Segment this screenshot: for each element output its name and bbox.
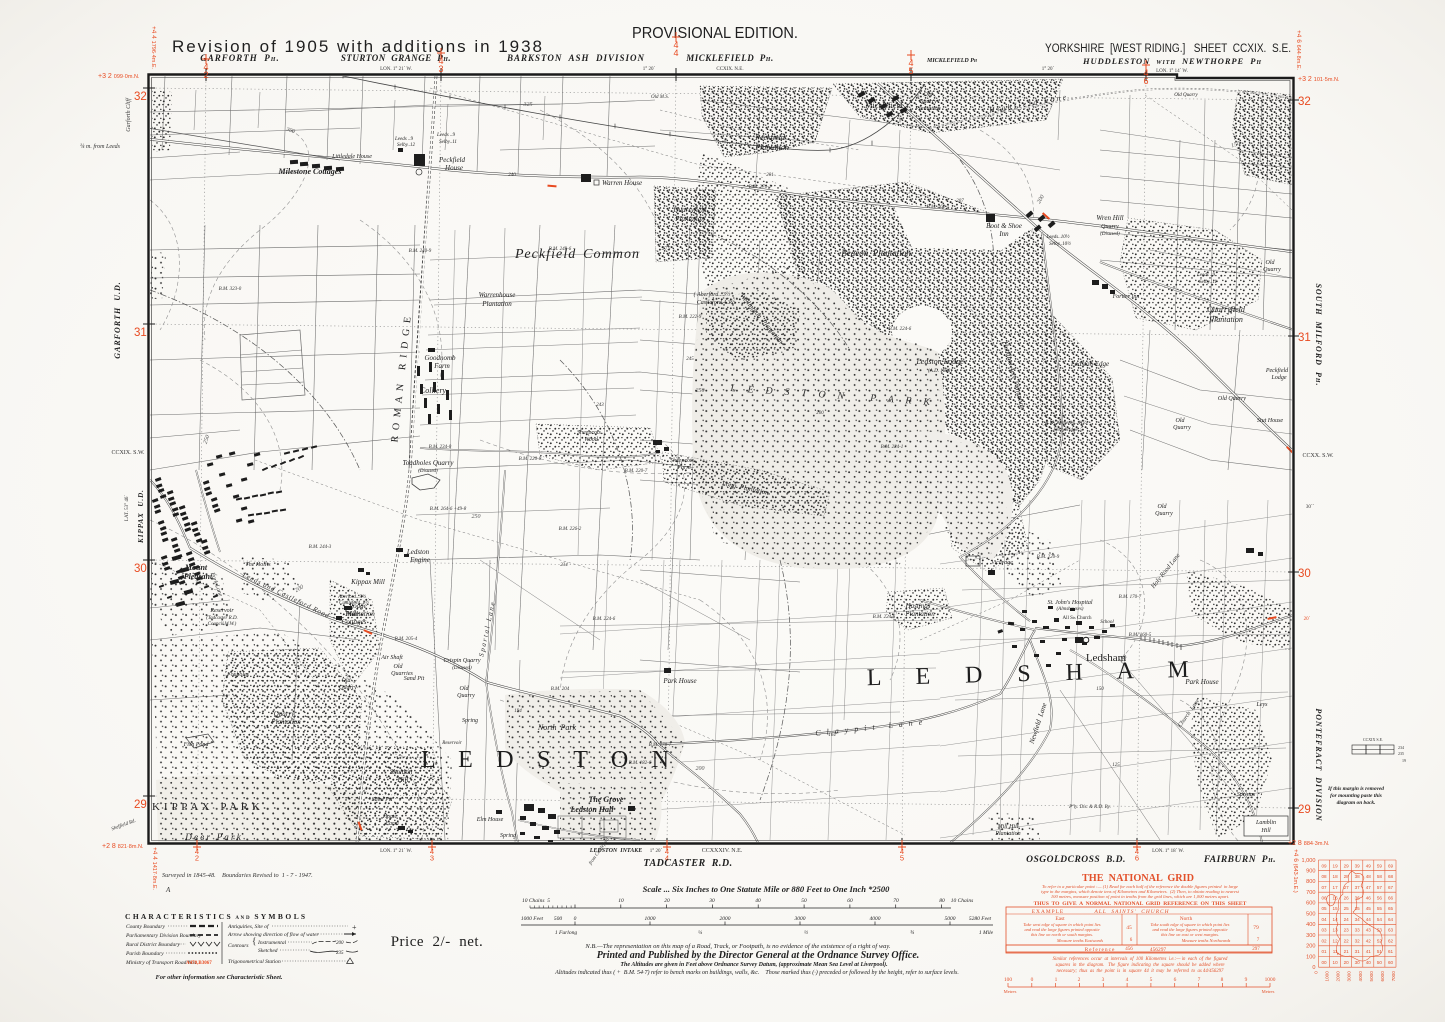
svg-text:EXAMPLE: EXAMPLE (1032, 909, 1064, 915)
svg-text:Scale ... Six Inches to One St: Scale ... Six Inches to One Statute Mile… (643, 884, 890, 894)
svg-text:1000: 1000 (1265, 977, 1276, 983)
svg-text:Sand Pit: Sand Pit (372, 797, 393, 803)
svg-text:Old: Old (342, 678, 352, 684)
svg-text:+4 4 1417·8m.E.: +4 4 1417·8m.E. (151, 847, 158, 891)
svg-text:LON. 1° 14´ W.: LON. 1° 14´ W. (1156, 69, 1188, 74)
svg-text:46: 46 (1366, 896, 1372, 901)
svg-text:Pºly. Dis. & R.D. By.: Pºly. Dis. & R.D. By. (1068, 804, 1111, 810)
svg-text:Parish Boundary: Parish Boundary (125, 951, 164, 957)
svg-text:57: 57 (1377, 885, 1383, 890)
svg-text:Metres: Metres (1004, 989, 1017, 994)
svg-text:Inn: Inn (998, 230, 1009, 238)
svg-text:STURTON GRANGE PH.: STURTON GRANGE PH. (341, 53, 451, 63)
svg-text:Old: Old (924, 92, 934, 98)
svg-text:Parliamentary Division Boundar: Parliamentary Division Boundary (125, 933, 202, 939)
svg-text:Leeds ..9: Leeds ..9 (436, 133, 455, 138)
svg-text:The Hollis: The Hollis (245, 562, 271, 568)
svg-text:250: 250 (472, 514, 481, 520)
svg-text:24: 24 (1344, 917, 1350, 922)
svg-text:61: 61 (1388, 949, 1394, 954)
svg-text:1° 20´: 1° 20´ (650, 849, 663, 854)
svg-text:Hill: Hill (397, 776, 409, 784)
svg-text:Wood: Wood (584, 437, 598, 443)
svg-text:Farm: Farm (384, 821, 399, 827)
svg-text:29: 29 (134, 799, 147, 811)
svg-text:+2 8 884·3m.N.: +2 8 884·3m.N. (1288, 840, 1330, 847)
svg-text:3: 3 (438, 64, 443, 74)
svg-text:Milestone Cottages: Milestone Cottages (278, 167, 342, 176)
svg-text:Toadholes Quarry: Toadholes Quarry (403, 459, 455, 467)
svg-text:Plantation: Plantation (674, 215, 705, 223)
svg-text:CCXX. S.W.: CCXX. S.W. (1302, 453, 1334, 459)
svg-text:Printed and Published by the D: Printed and Published by the Director Ge… (597, 950, 920, 961)
svg-text:0: 0 (1312, 965, 1315, 971)
svg-text:Park House: Park House (662, 677, 696, 685)
svg-text:58: 58 (1377, 874, 1383, 879)
svg-text:N.B.—The representation on thi: N.B.—The representation on this map of a… (584, 943, 891, 950)
svg-text:Quarry: Quarry (1101, 224, 1119, 230)
svg-text:Contours: Contours (228, 943, 248, 949)
svg-text:MICKLEFIELD PH: MICKLEFIELD PH (926, 58, 978, 64)
svg-text:Fish Pond: Fish Pond (183, 742, 210, 748)
svg-text:07: 07 (1321, 885, 1327, 890)
svg-text:Old Quarry: Old Quarry (1174, 93, 1198, 98)
svg-text:Reservoir: Reservoir (441, 741, 461, 746)
svg-text:Plantation: Plantation (914, 106, 940, 112)
svg-text:Old Quarry: Old Quarry (1218, 396, 1247, 402)
svg-text:41: 41 (1366, 949, 1372, 954)
svg-text:03: 03 (1321, 928, 1327, 933)
svg-text:Sheepcots: Sheepcots (577, 430, 602, 436)
svg-text:31: 31 (1298, 332, 1311, 344)
svg-text:Quarry: Quarry (1173, 425, 1191, 431)
svg-text:LAT. 53° 46´: LAT. 53° 46´ (125, 495, 130, 522)
svg-text:North Park: North Park (537, 723, 577, 732)
svg-text:300: 300 (1306, 933, 1315, 939)
svg-text:B.M. 240-9: B.M. 240-9 (409, 249, 432, 254)
svg-text:64: 64 (1388, 917, 1394, 922)
svg-text:Elm House: Elm House (476, 817, 504, 823)
svg-text:1 Furlong: 1 Furlong (555, 930, 577, 936)
svg-text:6000: 6000 (1380, 971, 1385, 982)
svg-text:68: 68 (1388, 874, 1394, 879)
svg-text:Plantation: Plantation (270, 718, 301, 726)
svg-text:GARFORTH U.D.: GARFORTH U.D. (113, 281, 122, 359)
svg-text:B.M. 224-6: B.M. 224-6 (889, 327, 912, 332)
svg-text:B.M. 170-7: B.M. 170-7 (1119, 595, 1142, 600)
svg-text:0: 0 (1314, 971, 1319, 974)
svg-text:45: 45 (1366, 906, 1372, 911)
svg-text:Springs: Springs (1237, 792, 1256, 798)
svg-text:Quarryfield: Quarryfield (673, 206, 707, 214)
svg-text:235: 235 (1398, 751, 1404, 756)
svg-text:MICKLEFIELD PH.: MICKLEFIELD PH. (685, 53, 773, 63)
svg-text:5000: 5000 (945, 916, 956, 922)
svg-text:B.M. 224-6: B.M. 224-6 (873, 615, 896, 620)
svg-text:Park House: Park House (1184, 678, 1218, 686)
svg-text:79: 79 (1253, 925, 1259, 931)
svg-text:234: 234 (1398, 745, 1404, 750)
svg-text:Vicarage: Vicarage (991, 560, 1013, 566)
svg-text:Warren House: Warren House (602, 179, 642, 187)
svg-text:125: 125 (1112, 763, 1120, 768)
svg-text:Plantation: Plantation (754, 143, 789, 152)
svg-text:Instrumental: Instrumental (257, 940, 287, 946)
svg-text:Warrenhouse: Warrenhouse (479, 291, 516, 299)
svg-text:40: 40 (1366, 960, 1372, 965)
svg-text:47: 47 (1366, 885, 1372, 890)
svg-text:63: 63 (1388, 928, 1394, 933)
svg-text:+3 2 101·5m.N.: +3 2 101·5m.N. (1298, 76, 1340, 83)
svg-text:240: 240 (508, 173, 516, 178)
svg-text:P e c k f i e l d C o m m o: P e c k f i e l d C o m m o n (514, 247, 639, 262)
svg-text:325: 325 (523, 102, 533, 108)
svg-text:Peckfield: Peckfield (1265, 367, 1289, 374)
svg-text:B.M. 222-9: B.M. 222-9 (679, 315, 702, 320)
svg-text:Quarry: Quarry (919, 99, 937, 105)
svg-text:9: 9 (1245, 977, 1248, 983)
svg-text:31: 31 (134, 327, 147, 339)
svg-text:Plantation: Plantation (994, 831, 1020, 837)
svg-text:4000: 4000 (870, 915, 881, 922)
svg-text:Reservoir: Reservoir (209, 608, 234, 614)
svg-text:32: 32 (134, 91, 147, 103)
svg-text:Ledston Hall: Ledston Hall (570, 805, 615, 814)
svg-text:Micklefield: Micklefield (865, 101, 902, 110)
svg-text:LON. 1° 18´ W.: LON. 1° 18´ W. (1152, 849, 1184, 854)
svg-text:400: 400 (1306, 922, 1315, 928)
svg-text:10: 10 (1333, 960, 1339, 965)
svg-text:B.M. 160-5: B.M. 160-5 (1129, 633, 1152, 638)
svg-text:Old: Old (460, 686, 470, 692)
svg-text:200: 200 (1306, 944, 1315, 950)
svg-text:5: 5 (900, 854, 904, 863)
svg-text:K I P P A X P A R K: K I P P A X P A R K (152, 801, 260, 813)
svg-text:104: 104 (828, 733, 836, 738)
svg-text:Old: Old (1176, 418, 1186, 424)
svg-text:Air Shaft: Air Shaft (380, 654, 403, 661)
svg-text:Quarryfield: Quarryfield (1207, 305, 1246, 314)
svg-text:245: 245 (686, 357, 694, 362)
svg-text:Old: Old (394, 664, 404, 670)
svg-text:B.M. 220-7: B.M. 220-7 (625, 469, 648, 474)
svg-text:Similar references occur at: Similar references occur at intervals of… (1053, 957, 1228, 962)
svg-text:Arrow showing direction of flo: Arrow showing direction of flow of water (227, 931, 320, 938)
svg-text:4: 4 (1126, 977, 1129, 983)
svg-text:54: 54 (1377, 917, 1383, 922)
svg-text:800: 800 (1306, 879, 1315, 885)
svg-text:Spring: Spring (500, 833, 516, 839)
svg-text:1000 Feet: 1000 Feet (521, 916, 544, 922)
svg-text:05: 05 (1321, 906, 1327, 911)
svg-text:Sketched: Sketched (258, 948, 278, 954)
svg-text:600: 600 (1306, 901, 1315, 907)
svg-text:House: House (444, 164, 463, 172)
svg-text:B.M. 323-0: B.M. 323-0 (219, 287, 242, 292)
svg-text:B.M. 244-3: B.M. 244-3 (309, 545, 332, 550)
svg-text:Leeds ..9: Leeds ..9 (1196, 273, 1215, 278)
svg-text:¼ m. from Leeds: ¼ m. from Leeds (80, 143, 121, 150)
svg-text:B.M. 220-8: B.M. 220-8 (519, 457, 542, 462)
svg-text:500: 500 (554, 916, 563, 922)
svg-text:243: 243 (596, 403, 604, 408)
svg-text:Crispin Quarry: Crispin Quarry (443, 658, 481, 664)
svg-text:Hill: Hill (1260, 828, 1271, 834)
svg-text:KIPPAX U.D.: KIPPAX U.D. (137, 489, 145, 544)
svg-text:Measure tenths Eastwards: Measure tenths Eastwards (1056, 938, 1104, 943)
svg-text:70: 70 (893, 898, 899, 904)
svg-text:2: 2 (203, 70, 208, 80)
svg-text:Selby..12: Selby..12 (397, 143, 416, 148)
svg-text:CCXIX. S.W.: CCXIX. S.W. (111, 450, 145, 456)
svg-text:Old: Old (1158, 504, 1168, 510)
svg-text:60: 60 (1388, 960, 1394, 965)
svg-text:for mounting paste this: for mounting paste this (1330, 793, 1382, 799)
svg-text:THUS TO GIVE A NORMAL NAT: THUS TO GIVE A NORMAL NATIONAL GRID REFE… (1034, 901, 1247, 907)
svg-text:Mill: Mill (345, 610, 358, 618)
svg-text:3000: 3000 (1347, 971, 1352, 982)
svg-text:56: 56 (1377, 896, 1383, 901)
svg-text:Selby..11: Selby..11 (439, 140, 457, 145)
svg-text:Peckfield: Peckfield (754, 133, 786, 142)
svg-text:19: 19 (1333, 863, 1339, 868)
svg-text:31: 31 (1355, 949, 1361, 954)
svg-text:275: 275 (662, 246, 671, 252)
svg-text:Altitudes indicated thus ( +: Altitudes indicated thus ( + B.M. 54·7) … (554, 969, 959, 976)
svg-text:Peckfield: Peckfield (438, 156, 466, 164)
svg-text:SOUTH MILFORD PH.: SOUTH MILFORD PH. (1314, 283, 1323, 386)
svg-text:Foriter Inn: Foriter Inn (1112, 294, 1140, 300)
svg-text:250: 250 (696, 388, 705, 394)
svg-text:(Almshouses): (Almshouses) (1057, 607, 1084, 612)
svg-text:00: 00 (1321, 960, 1327, 965)
svg-text:School: School (1100, 620, 1114, 625)
svg-text:42: 42 (1366, 938, 1372, 943)
svg-text:+: + (352, 923, 357, 932)
svg-text:32: 32 (1298, 96, 1311, 108)
svg-text:For other information see Char: For other information see Characteristic… (155, 974, 282, 981)
svg-text:62: 62 (1388, 938, 1394, 943)
svg-text:36: 36 (1355, 896, 1361, 901)
svg-text:Kippax Mill: Kippax Mill (350, 578, 385, 586)
svg-text:Measure tenths Northwards: Measure tenths Northwards (1181, 938, 1231, 943)
svg-text:Quarry: Quarry (1155, 511, 1173, 517)
svg-text:49: 49 (1366, 863, 1372, 868)
svg-text:B.M. 270-1: B.M. 270-1 (749, 185, 772, 190)
svg-text:B.M. 224-6: B.M. 224-6 (593, 617, 616, 622)
svg-text:(Tadcaster R.D.: (Tadcaster R.D. (206, 616, 238, 621)
svg-text:Lodge: Lodge (1271, 375, 1287, 381)
svg-text:Mount: Mount (184, 563, 208, 572)
svg-text:100: 100 (1004, 977, 1012, 983)
svg-text:A470,B3067: A470,B3067 (186, 961, 212, 966)
svg-text:234: 234 (560, 563, 568, 568)
svg-text:Council W.W.): Council W.W.) (208, 622, 237, 627)
svg-text:1° 20´: 1° 20´ (1042, 67, 1055, 72)
svg-text:2: 2 (195, 854, 199, 863)
svg-text:30: 30 (1298, 568, 1311, 580)
svg-text:6: 6 (1174, 977, 1177, 983)
svg-text:squares in the diagram. T: squares in the diagram. The figure indic… (1055, 963, 1225, 968)
svg-text:Foxholes: Foxholes (226, 672, 250, 678)
svg-text:FAIRBURN PH.: FAIRBURN PH. (1203, 855, 1276, 865)
svg-text:14: 14 (1333, 917, 1339, 922)
svg-text:65: 65 (1388, 906, 1394, 911)
svg-text:this line on north or south ma: this line on north or south margins. (1031, 932, 1093, 937)
svg-text:Rural District Boundary: Rural District Boundary (125, 942, 180, 948)
svg-text:6: 6 (1143, 76, 1148, 86)
svg-text:CCXIX S.E.: CCXIX S.E. (1363, 737, 1383, 742)
svg-text:29: 29 (1344, 863, 1350, 868)
svg-text:THE NATIONAL GRID: THE NATIONAL GRID (1082, 873, 1194, 884)
svg-text:½: ½ (804, 929, 808, 936)
svg-text:¾: ¾ (910, 930, 914, 936)
svg-text:17: 17 (1333, 885, 1339, 890)
svg-text:B.M. 264-6 +49-8: B.M. 264-6 +49-8 (430, 507, 467, 512)
svg-text:297: 297 (1252, 947, 1260, 952)
svg-text:2000: 2000 (720, 916, 731, 922)
svg-text:OSGOLDCROSS B.D.: OSGOLDCROSS B.D. (1026, 855, 1126, 865)
svg-text:207: 207 (956, 199, 964, 204)
svg-text:69: 69 (1388, 863, 1394, 868)
svg-text:0: 0 (574, 916, 577, 922)
svg-text:+4 6 644·8m.E.: +4 6 644·8m.E. (1295, 30, 1302, 70)
svg-text:(Disused): (Disused) (418, 469, 438, 474)
svg-text:37: 37 (1355, 885, 1361, 890)
svg-text:B.M. 220-9: B.M. 220-9 (1037, 555, 1060, 560)
svg-text:Colliery: Colliery (420, 386, 447, 395)
svg-text:Lamblin: Lamblin (1255, 820, 1276, 826)
svg-text:Engine: Engine (409, 556, 430, 564)
svg-text:Castleford..2½: Castleford..2½ (339, 601, 369, 606)
svg-text:CCXXXIV. N.E.: CCXXXIV. N.E. (702, 848, 743, 854)
svg-text:7000: 7000 (1391, 971, 1396, 982)
svg-text:All Sts Church: All Sts Church (1062, 615, 1092, 621)
svg-text:The Grove: The Grove (589, 795, 624, 804)
svg-text:C H A R A C T E R I S T I C S: C H A R A C T E R I S T I C S A N D S Y … (125, 912, 305, 921)
svg-text:3: 3 (1102, 977, 1105, 983)
svg-text:Pleasant: Pleasant (184, 572, 213, 581)
svg-text:Sheldon: Sheldon (390, 768, 413, 776)
svg-text:¼: ¼ (698, 930, 702, 936)
svg-text:500: 500 (1306, 911, 1315, 917)
svg-text:6: 6 (1135, 854, 1139, 863)
svg-text:Boot & Shoe: Boot & Shoe (986, 222, 1022, 230)
svg-text:B.M. 224-1: B.M. 224-1 (881, 445, 904, 450)
svg-text:4: 4 (673, 48, 678, 58)
svg-text:08: 08 (1321, 874, 1327, 879)
svg-text:66: 66 (1388, 896, 1394, 901)
svg-text:8: 8 (1221, 977, 1224, 983)
svg-text:45: 45 (1126, 925, 1132, 931)
svg-text:Aberford...4½: Aberford...4½ (337, 595, 366, 600)
svg-text:+3 2 099·0m.N.: +3 2 099·0m.N. (98, 73, 140, 80)
svg-text:100: 100 (1306, 954, 1315, 960)
svg-text:{: { (252, 936, 256, 946)
svg-text:60: 60 (847, 898, 853, 904)
svg-text:Leeds..10½: Leeds..10½ (1046, 235, 1070, 240)
svg-text:5000: 5000 (1369, 971, 1374, 982)
svg-text:Farm: Farm (676, 465, 691, 471)
svg-text:3: 3 (430, 854, 434, 863)
svg-text:Sand Pit: Sand Pit (404, 676, 425, 682)
svg-text:diagram on back.: diagram on back. (1337, 800, 1376, 806)
svg-text:Metres: Metres (1262, 989, 1275, 994)
svg-text:200: 200 (696, 766, 705, 772)
svg-text:30: 30 (134, 563, 147, 575)
svg-text:Hastings: Hastings (905, 602, 931, 610)
svg-text:Plantation: Plantation (481, 300, 512, 308)
svg-text:7: 7 (1198, 977, 1201, 983)
svg-text:35: 35 (1355, 906, 1361, 911)
svg-text:+4 6 (643·1m.E.): +4 6 (643·1m.E.) (1292, 849, 1299, 893)
svg-text:BARKSTON ASH DIVISION: BARKSTON ASH DIVISION (506, 53, 645, 63)
svg-text:900: 900 (1306, 869, 1315, 875)
svg-text:( Aberford...3½: ( Aberford...3½ (694, 291, 731, 298)
svg-text:10 Chains 5: 10 Chains 5 (522, 898, 550, 904)
svg-text:+4 4 1796·4m.E.: +4 4 1796·4m.E. (150, 26, 157, 70)
svg-text:Reference: Reference (1085, 946, 1116, 953)
svg-text:10 Chains: 10 Chains (951, 898, 973, 904)
svg-text:B.M. 182-6: B.M. 182-6 (629, 761, 652, 766)
svg-text:(A.D. 1600): (A.D. 1600) (928, 369, 952, 374)
svg-text:44: 44 (1366, 917, 1372, 922)
svg-text:200: 200 (336, 941, 344, 946)
svg-text:18: 18 (1333, 874, 1339, 879)
svg-text:Surveyed in 1845-48. Bounda: Surveyed in 1845-48. Boundaries Revised … (162, 872, 313, 879)
svg-text:Sheepcots: Sheepcots (670, 458, 695, 464)
svg-text:Selby..11: Selby..11 (1199, 280, 1217, 285)
svg-text:50: 50 (1377, 960, 1383, 965)
svg-text:Spring: Spring (462, 718, 478, 724)
svg-text:06: 06 (1321, 896, 1327, 901)
svg-text:1000: 1000 (1325, 971, 1330, 982)
svg-text:456: 456 (1125, 947, 1133, 952)
svg-text:LON. 1° 21´ W.: LON. 1° 21´ W. (380, 67, 412, 72)
svg-text:Plantation: Plantation (904, 610, 935, 618)
svg-text:Old M.S.: Old M.S. (651, 95, 669, 100)
svg-text:20: 20 (1344, 960, 1350, 965)
svg-text:20´: 20´ (1304, 617, 1311, 622)
svg-text:The Altitudes are given in Fee: The Altitudes are given in Feet above Or… (620, 961, 888, 968)
svg-text:21: 21 (1344, 949, 1350, 954)
svg-text:B.M. Wetherby...11½: B.M. Wetherby...11½ (1045, 421, 1087, 426)
svg-text:700: 700 (1306, 890, 1315, 896)
svg-text:Trigonometrical Station: Trigonometrical Station (228, 959, 281, 965)
svg-text:29: 29 (1298, 804, 1311, 816)
svg-text:2000: 2000 (1336, 971, 1341, 982)
svg-text:40: 40 (755, 897, 761, 904)
svg-text:2: 2 (1078, 977, 1081, 983)
svg-text:If this margin is removed: If this margin is removed (1327, 786, 1384, 792)
svg-text:Quarry: Quarry (339, 685, 357, 691)
svg-text:Wren Hill: Wren Hill (1096, 214, 1123, 222)
svg-text:PONTEFRACT DIVISION: PONTEFRACT DIVISION (1314, 708, 1323, 822)
svg-text:Castleford 4.3½: Castleford 4.3½ (697, 299, 736, 306)
svg-text:B.M. 234-0: B.M. 234-0 (429, 445, 452, 450)
svg-text:48: 48 (1366, 874, 1372, 879)
svg-text:necessary; thus as the poi: necessary; thus as the point is in squar… (1057, 969, 1225, 974)
svg-text:3000: 3000 (794, 916, 806, 922)
svg-text:25: 25 (1344, 906, 1350, 911)
svg-text:+2 8 821·8m.N.: +2 8 821·8m.N. (102, 843, 144, 850)
svg-text:4000: 4000 (1358, 971, 1363, 982)
svg-text:Farm: Farm (433, 362, 450, 370)
svg-text:5280 Feet: 5280 Feet (969, 916, 992, 922)
svg-text:235: 235 (336, 951, 344, 956)
svg-text:30: 30 (708, 898, 715, 904)
svg-text:02: 02 (1321, 938, 1327, 943)
